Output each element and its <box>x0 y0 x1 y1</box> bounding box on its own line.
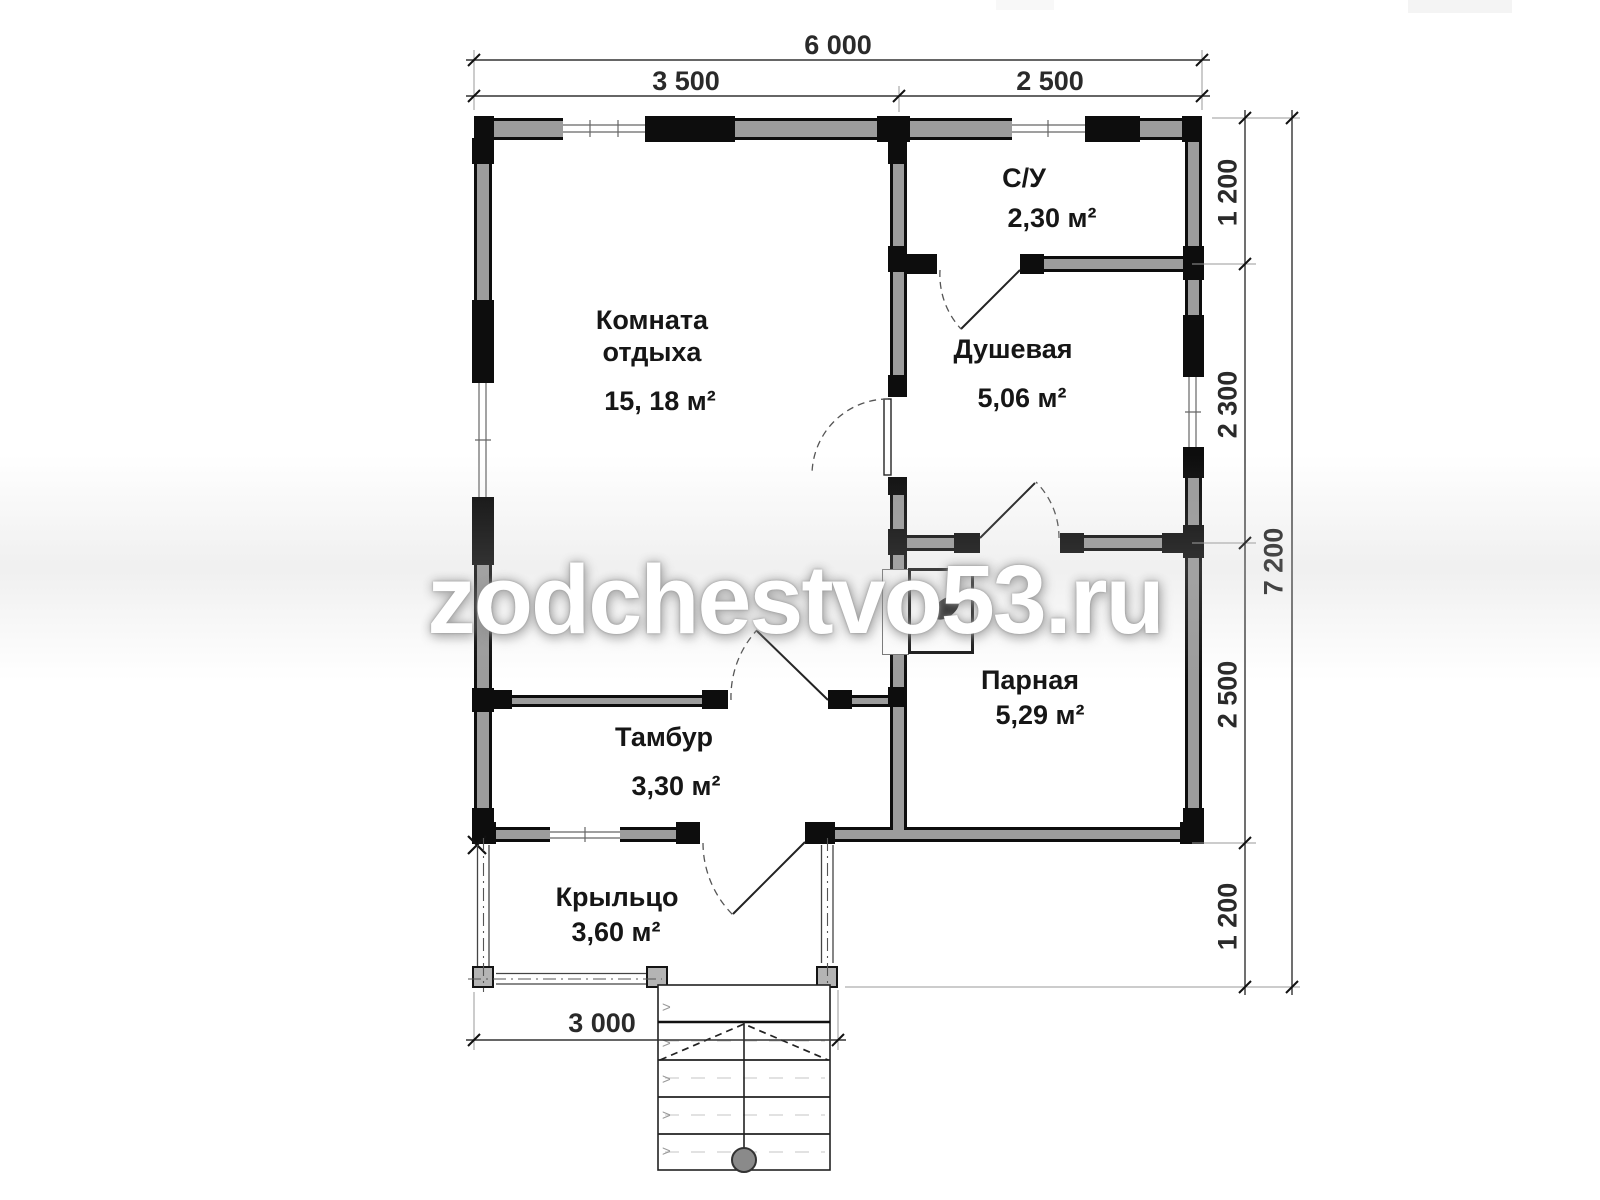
room-label-rest: Комната отдыха <box>552 304 752 368</box>
room-area-steam: 5,29 м² <box>950 700 1130 731</box>
dim-right-1200-bottom: 1 200 <box>1213 857 1244 977</box>
porch-railings <box>478 845 834 984</box>
room-label-vestibule: Тамбур <box>584 721 744 753</box>
room-label-steam: Парная <box>950 664 1110 696</box>
floor-plan-canvas: >> >> > 6 000 3 500 2 <box>0 0 1600 1200</box>
dim-right-1200-top: 1 200 <box>1213 133 1244 253</box>
plan-linework: >> >> > <box>0 0 1600 1200</box>
svg-text:>: > <box>662 1071 671 1088</box>
dim-span-right: 2 500 <box>990 66 1110 97</box>
porch-axis-lines <box>468 838 828 992</box>
svg-text:>: > <box>662 1107 671 1124</box>
dim-right-2300: 2 300 <box>1213 345 1244 465</box>
room-label-porch: Крыльцо <box>527 881 707 913</box>
svg-text:>: > <box>662 1035 671 1052</box>
room-area-vestibule: 3,30 м² <box>586 771 766 802</box>
dim-right-2500: 2 500 <box>1213 635 1244 755</box>
svg-text:>: > <box>662 1143 671 1160</box>
stairs: >> >> > <box>658 985 830 1172</box>
dim-overall-width: 6 000 <box>778 30 898 61</box>
door-leaves <box>733 270 1035 914</box>
room-area-porch: 3,60 м² <box>526 917 706 948</box>
stove-door-icon <box>929 592 964 625</box>
svg-text:>: > <box>662 999 671 1016</box>
dim-porch-width: 3 000 <box>542 1008 662 1039</box>
room-area-shower: 5,06 м² <box>942 383 1102 414</box>
room-area-rest: 15, 18 м² <box>560 386 760 417</box>
room-label-shower: Душевая <box>923 333 1103 365</box>
dim-span-left: 3 500 <box>626 66 746 97</box>
dim-overall-height: 7 200 <box>1259 502 1290 622</box>
room-area-wc: 2,30 м² <box>972 203 1132 234</box>
room-label-wc: С/У <box>964 162 1084 194</box>
door-swing-arcs <box>703 270 1059 915</box>
